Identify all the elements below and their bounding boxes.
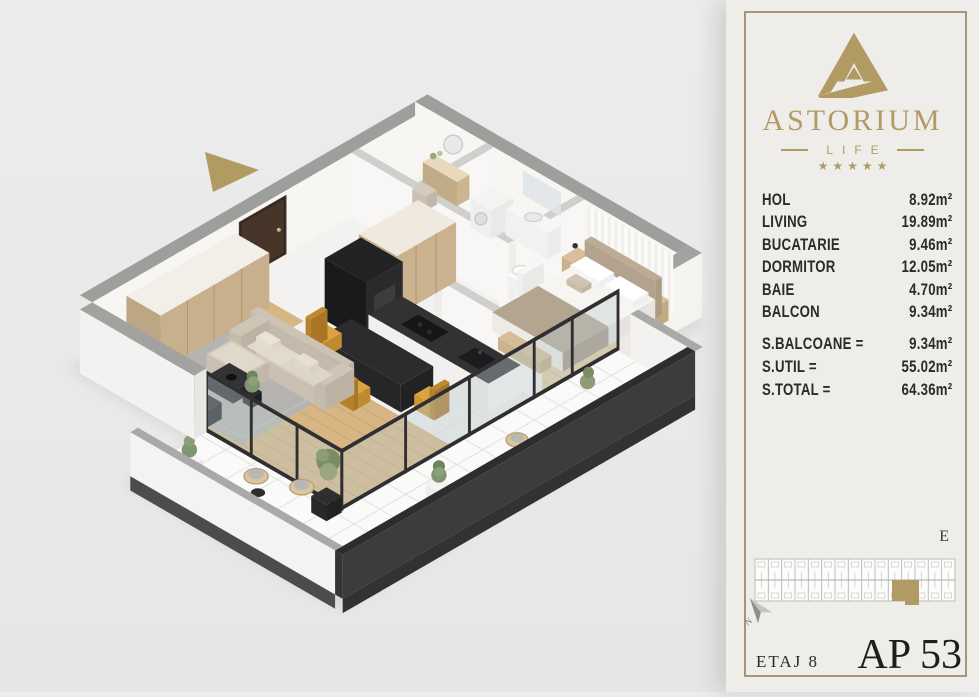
totals-list: S.BALCOANE =9.34m² S.UTIL =55.02m² S.TOT… (762, 333, 952, 402)
five-stars-icon: ★★★★★ (726, 159, 979, 173)
list-item: BUCATARIE9.46m² (762, 234, 952, 256)
total-value: 55.02m² (902, 356, 953, 379)
list-item: S.UTIL =55.02m² (762, 356, 952, 379)
room-label: BAIE (762, 279, 795, 301)
room-label: LIVING (762, 211, 807, 233)
list-item: DORMITOR12.05m² (762, 256, 952, 278)
list-item: LIVING19.89m² (762, 211, 952, 233)
room-label: HOL (762, 189, 791, 211)
room-area: 9.46m² (909, 234, 952, 256)
list-item: S.BALCOANE =9.34m² (762, 333, 952, 356)
room-label: DORMITOR (762, 256, 836, 278)
total-value: 64.36m² (902, 379, 953, 402)
list-item: HOL8.92m² (762, 189, 952, 211)
building-section-label: E (939, 528, 949, 546)
total-label: S.UTIL = (762, 356, 817, 379)
north-compass-icon: N (742, 592, 776, 628)
total-label: S.BALCOANE = (762, 333, 864, 356)
floorplan-area (0, 0, 740, 692)
left-dash (781, 149, 808, 151)
apartment-floorplan-3d (0, 0, 740, 692)
svg-text:N: N (743, 615, 755, 627)
right-dash (897, 149, 924, 151)
total-value: 9.34m² (909, 333, 952, 356)
entrance-arrow-icon (205, 152, 259, 192)
list-item: S.TOTAL =64.36m² (762, 379, 952, 402)
info-panel: ASTORIUM LIFE ★★★★★ HOL8.92m² LIVING19.8… (726, 0, 979, 692)
room-label: BALCON (762, 301, 820, 323)
brand-logo-block: ASTORIUM LIFE ★★★★★ (726, 30, 979, 173)
room-areas-list: HOL8.92m² LIVING19.89m² BUCATARIE9.46m² … (762, 189, 952, 323)
room-area: 12.05m² (902, 256, 953, 278)
building-floorplate-thumbnail (754, 555, 956, 607)
brand-logo-icon (814, 30, 892, 98)
list-item: BAIE4.70m² (762, 279, 952, 301)
room-area: 4.70m² (909, 279, 952, 301)
room-area: 19.89m² (902, 211, 953, 233)
brand-subtitle-row: LIFE (726, 143, 979, 157)
brand-subtitle: LIFE (817, 143, 887, 157)
room-area: 8.92m² (909, 189, 952, 211)
brand-name: ASTORIUM (726, 104, 979, 138)
total-label: S.TOTAL = (762, 379, 831, 402)
room-area: 9.34m² (909, 301, 952, 323)
apartment-number: AP 53 (857, 631, 962, 679)
floor-label: ETAJ 8 (756, 652, 819, 672)
list-item: BALCON9.34m² (762, 301, 952, 323)
room-label: BUCATARIE (762, 234, 840, 256)
